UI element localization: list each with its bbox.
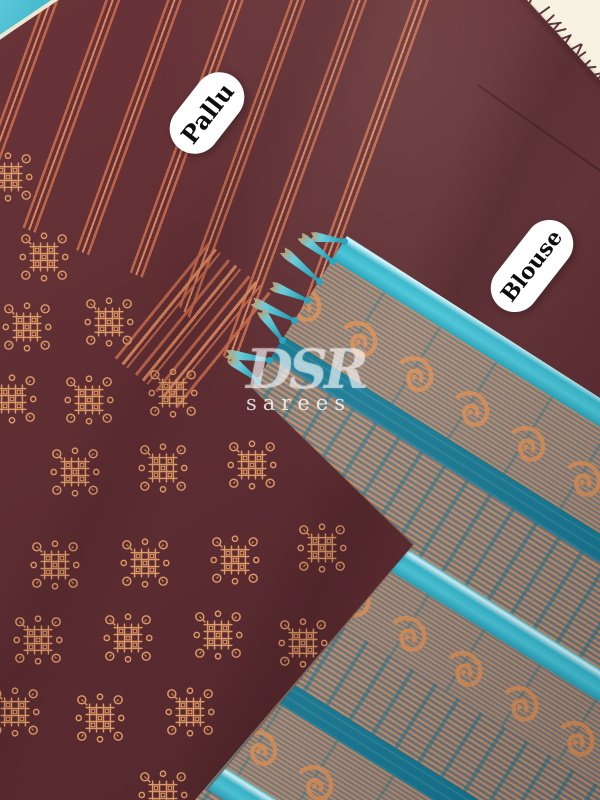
tassel-knot — [341, 238, 348, 245]
tassel-knot — [329, 258, 336, 265]
saree-product-photo: Pallu Blouse DSR sarees — [0, 0, 600, 800]
tassel-knot — [316, 278, 323, 285]
